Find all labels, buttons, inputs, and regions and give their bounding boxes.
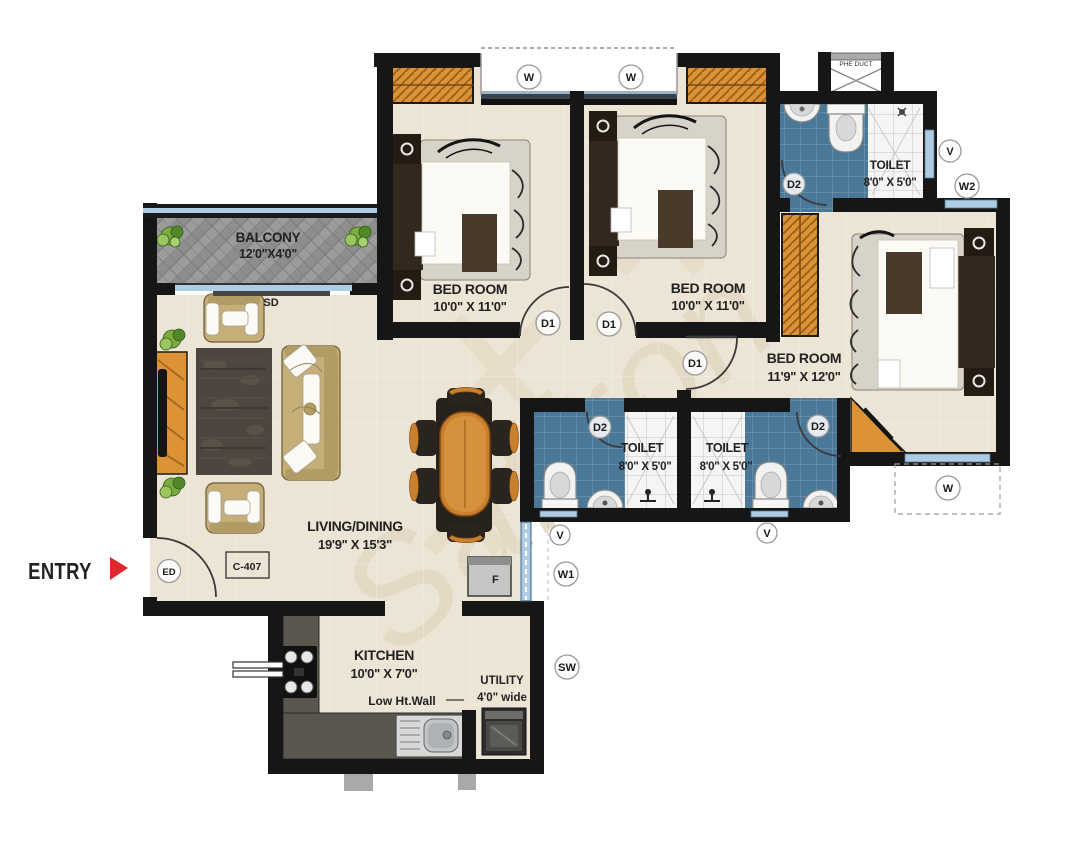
svg-text:BED ROOM: BED ROOM — [433, 281, 508, 297]
svg-text:BALCONY: BALCONY — [236, 230, 301, 245]
svg-text:BED ROOM: BED ROOM — [767, 350, 842, 366]
svg-text:D1: D1 — [602, 319, 616, 331]
svg-text:TOILET: TOILET — [706, 441, 749, 455]
svg-text:19'9" X 15'3": 19'9" X 15'3" — [318, 537, 392, 552]
svg-text:W2: W2 — [959, 181, 976, 193]
svg-text:W1: W1 — [558, 569, 575, 581]
svg-text:BED ROOM: BED ROOM — [671, 280, 746, 296]
svg-text:Low Ht.Wall: Low Ht.Wall — [368, 694, 436, 708]
svg-text:D2: D2 — [593, 422, 607, 434]
svg-text:ED: ED — [162, 567, 175, 578]
svg-text:10'0" X 11'0": 10'0" X 11'0" — [671, 298, 744, 313]
svg-text:UTILITY: UTILITY — [480, 675, 524, 687]
svg-text:LIVING/DINING: LIVING/DINING — [307, 518, 403, 534]
svg-text:D2: D2 — [811, 421, 825, 433]
svg-text:TOILET: TOILET — [870, 158, 912, 172]
svg-text:8'0" X 5'0": 8'0" X 5'0" — [700, 461, 753, 473]
svg-text:8'0" X 5'0": 8'0" X 5'0" — [864, 177, 917, 189]
svg-text:10'0" X 11'0": 10'0" X 11'0" — [433, 299, 506, 314]
svg-text:ENTRY: ENTRY — [28, 559, 92, 584]
svg-text:SW: SW — [558, 662, 576, 674]
svg-text:D1: D1 — [541, 318, 555, 330]
svg-text:V: V — [763, 528, 771, 540]
svg-text:SD: SD — [263, 297, 278, 309]
svg-text:KITCHEN: KITCHEN — [354, 647, 414, 663]
svg-text:4'0" wide: 4'0" wide — [477, 692, 527, 704]
svg-text:V: V — [556, 530, 564, 542]
svg-text:C-407: C-407 — [233, 561, 262, 573]
svg-text:W: W — [524, 72, 535, 84]
svg-text:D2: D2 — [787, 179, 801, 191]
svg-text:10'0" X 7'0": 10'0" X 7'0" — [351, 666, 418, 681]
svg-text:PHE DUCT: PHE DUCT — [839, 61, 872, 68]
svg-text:8'0" X 5'0": 8'0" X 5'0" — [619, 461, 672, 473]
svg-text:V: V — [946, 146, 954, 158]
svg-text:W: W — [626, 72, 637, 84]
svg-text:TOILET: TOILET — [621, 441, 664, 455]
svg-text:11'9" X 12'0": 11'9" X 12'0" — [767, 369, 840, 384]
svg-text:W: W — [943, 483, 954, 495]
svg-text:D1: D1 — [688, 358, 702, 370]
svg-text:12'0"X4'0": 12'0"X4'0" — [239, 247, 297, 261]
svg-text:F: F — [492, 574, 499, 586]
